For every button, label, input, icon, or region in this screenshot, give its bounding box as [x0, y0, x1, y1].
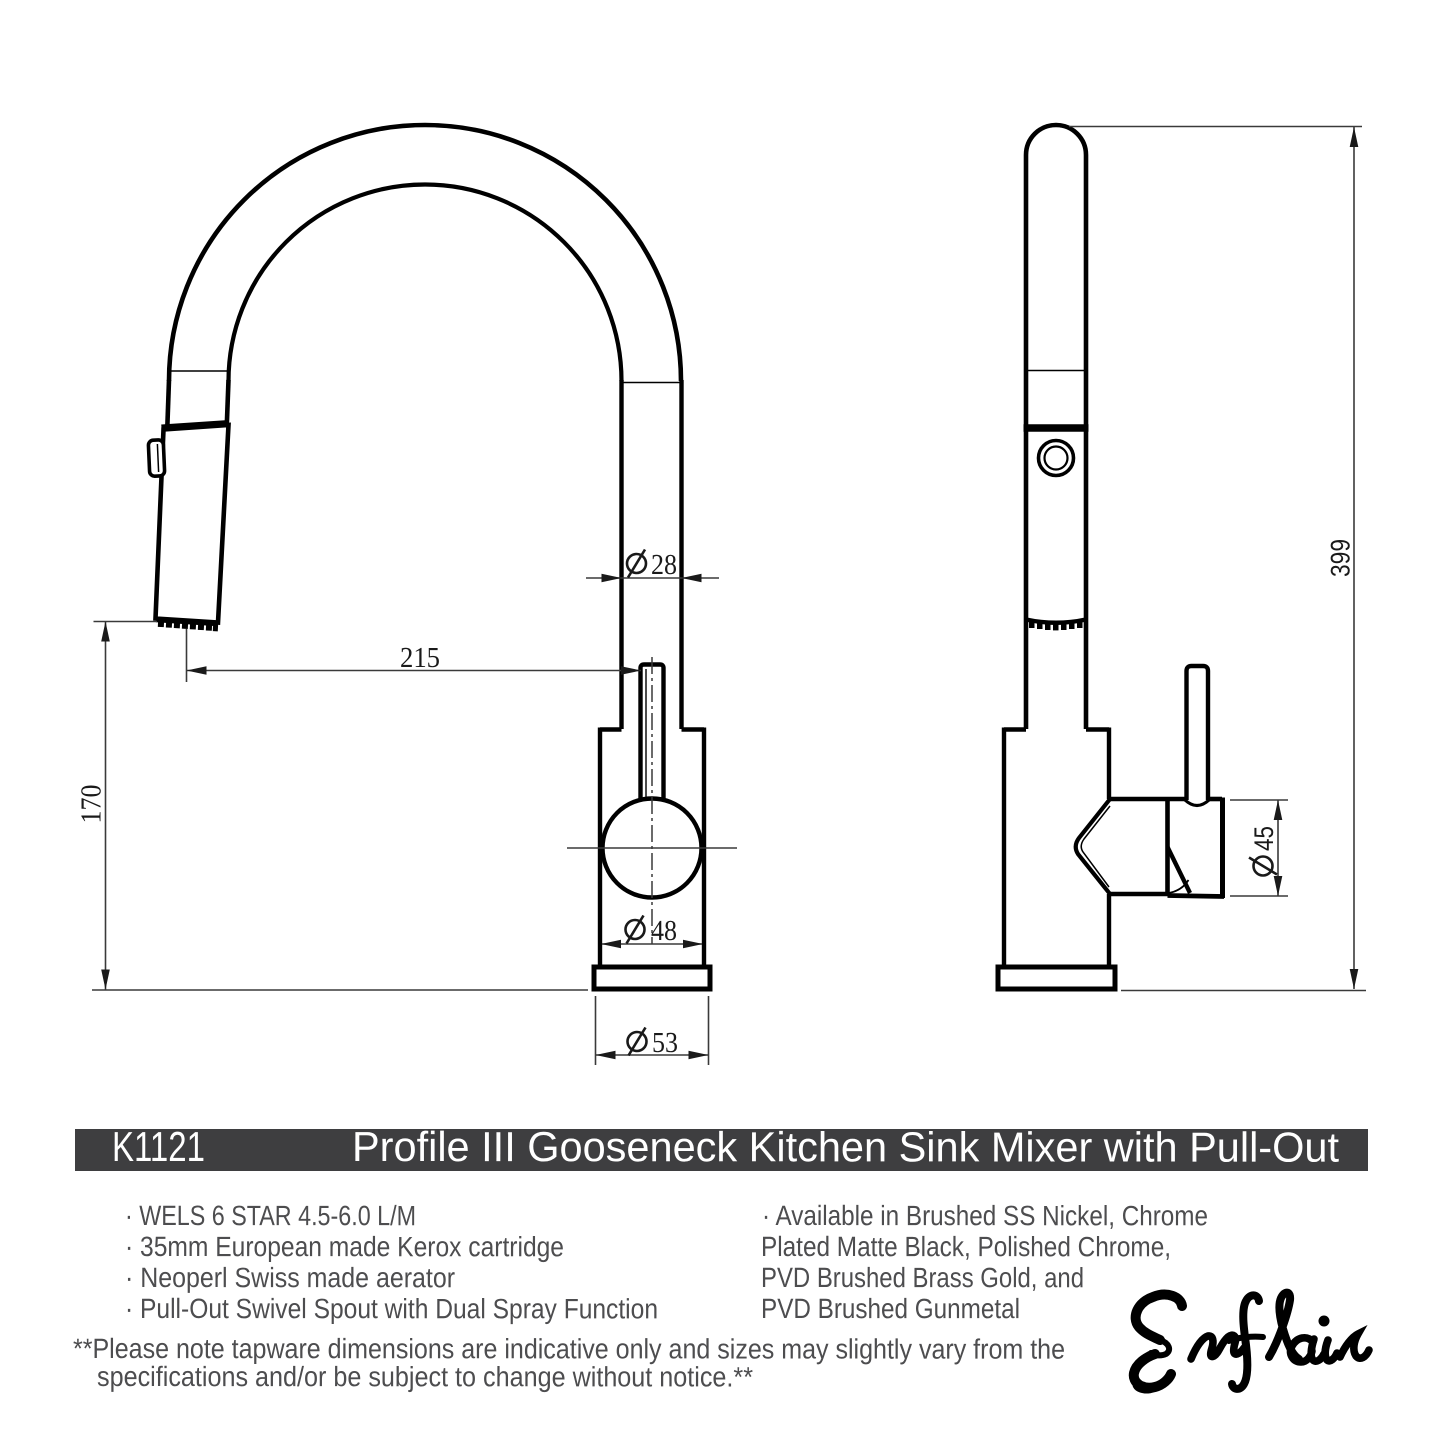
svg-text:48: 48	[651, 915, 677, 947]
svg-text:specifications and/or be subje: specifications and/or be subject to chan…	[97, 1361, 753, 1392]
svg-text:Profile III Gooseneck Kitchen: Profile III Gooseneck Kitchen Sink Mixer…	[352, 1123, 1339, 1171]
svg-text:PVD Brushed Gunmetal: PVD Brushed Gunmetal	[761, 1293, 1020, 1324]
svg-text:215: 215	[400, 642, 440, 674]
svg-text:170: 170	[76, 785, 108, 824]
svg-text:399: 399	[1326, 539, 1356, 577]
svg-text:53: 53	[652, 1027, 678, 1059]
svg-text:Plated Matte Black, Polished C: Plated Matte Black, Polished Chrome,	[761, 1231, 1171, 1262]
svg-text:· Neoperl Swiss made aerator: · Neoperl Swiss made aerator	[125, 1262, 455, 1293]
svg-text:· WELS 6 STAR 4.5-6.0 L/M: · WELS 6 STAR 4.5-6.0 L/M	[125, 1200, 416, 1231]
svg-text:28: 28	[651, 549, 677, 581]
svg-text:· Available in Brushed SS Nick: · Available in Brushed SS Nickel, Chrome	[762, 1200, 1208, 1231]
svg-text:· 35mm European made Kerox car: · 35mm European made Kerox cartridge	[125, 1231, 564, 1262]
svg-text:45: 45	[1249, 826, 1279, 851]
svg-text:· Pull-Out Swivel Spout with D: · Pull-Out Swivel Spout with Dual Spray …	[125, 1293, 658, 1324]
svg-text:K1121: K1121	[112, 1123, 205, 1170]
svg-text:**Please note tapware dimensio: **Please note tapware dimensions are ind…	[73, 1333, 1065, 1365]
svg-text:PVD Brushed Brass Gold, and: PVD Brushed Brass Gold, and	[761, 1262, 1084, 1293]
